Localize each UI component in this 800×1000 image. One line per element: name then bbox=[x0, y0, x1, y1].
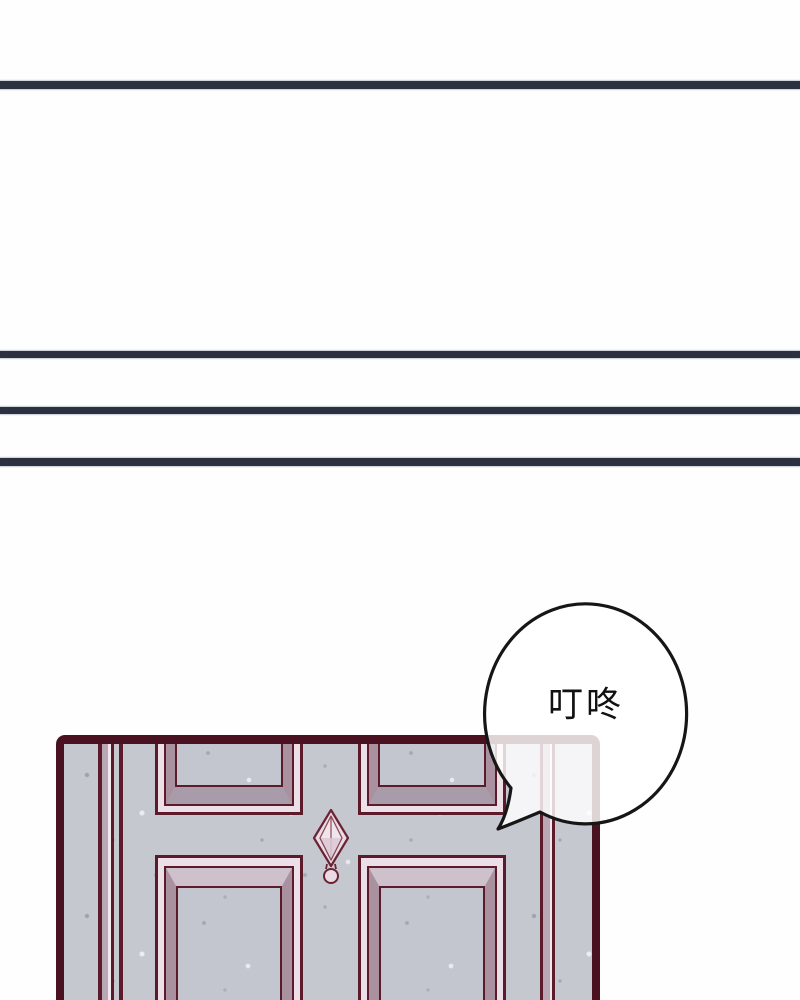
panel-divider-line-2 bbox=[0, 351, 800, 358]
sound-effect-text: 叮咚 bbox=[548, 685, 624, 724]
panel-divider-line-1 bbox=[0, 81, 800, 89]
doorbell-sound-bubble: 叮咚 bbox=[440, 560, 720, 860]
diamond-ornament bbox=[311, 806, 351, 892]
door-panel-top-left bbox=[155, 744, 303, 815]
door-left-trim bbox=[98, 744, 123, 1000]
comic-page: 叮咚 bbox=[0, 0, 800, 1000]
door-panel-bottom-left bbox=[155, 855, 303, 1000]
panel-divider-line-4 bbox=[0, 458, 800, 466]
panel-divider-line-3 bbox=[0, 407, 800, 414]
trim-line bbox=[119, 744, 123, 1000]
door-panel-bottom-right bbox=[358, 855, 506, 1000]
